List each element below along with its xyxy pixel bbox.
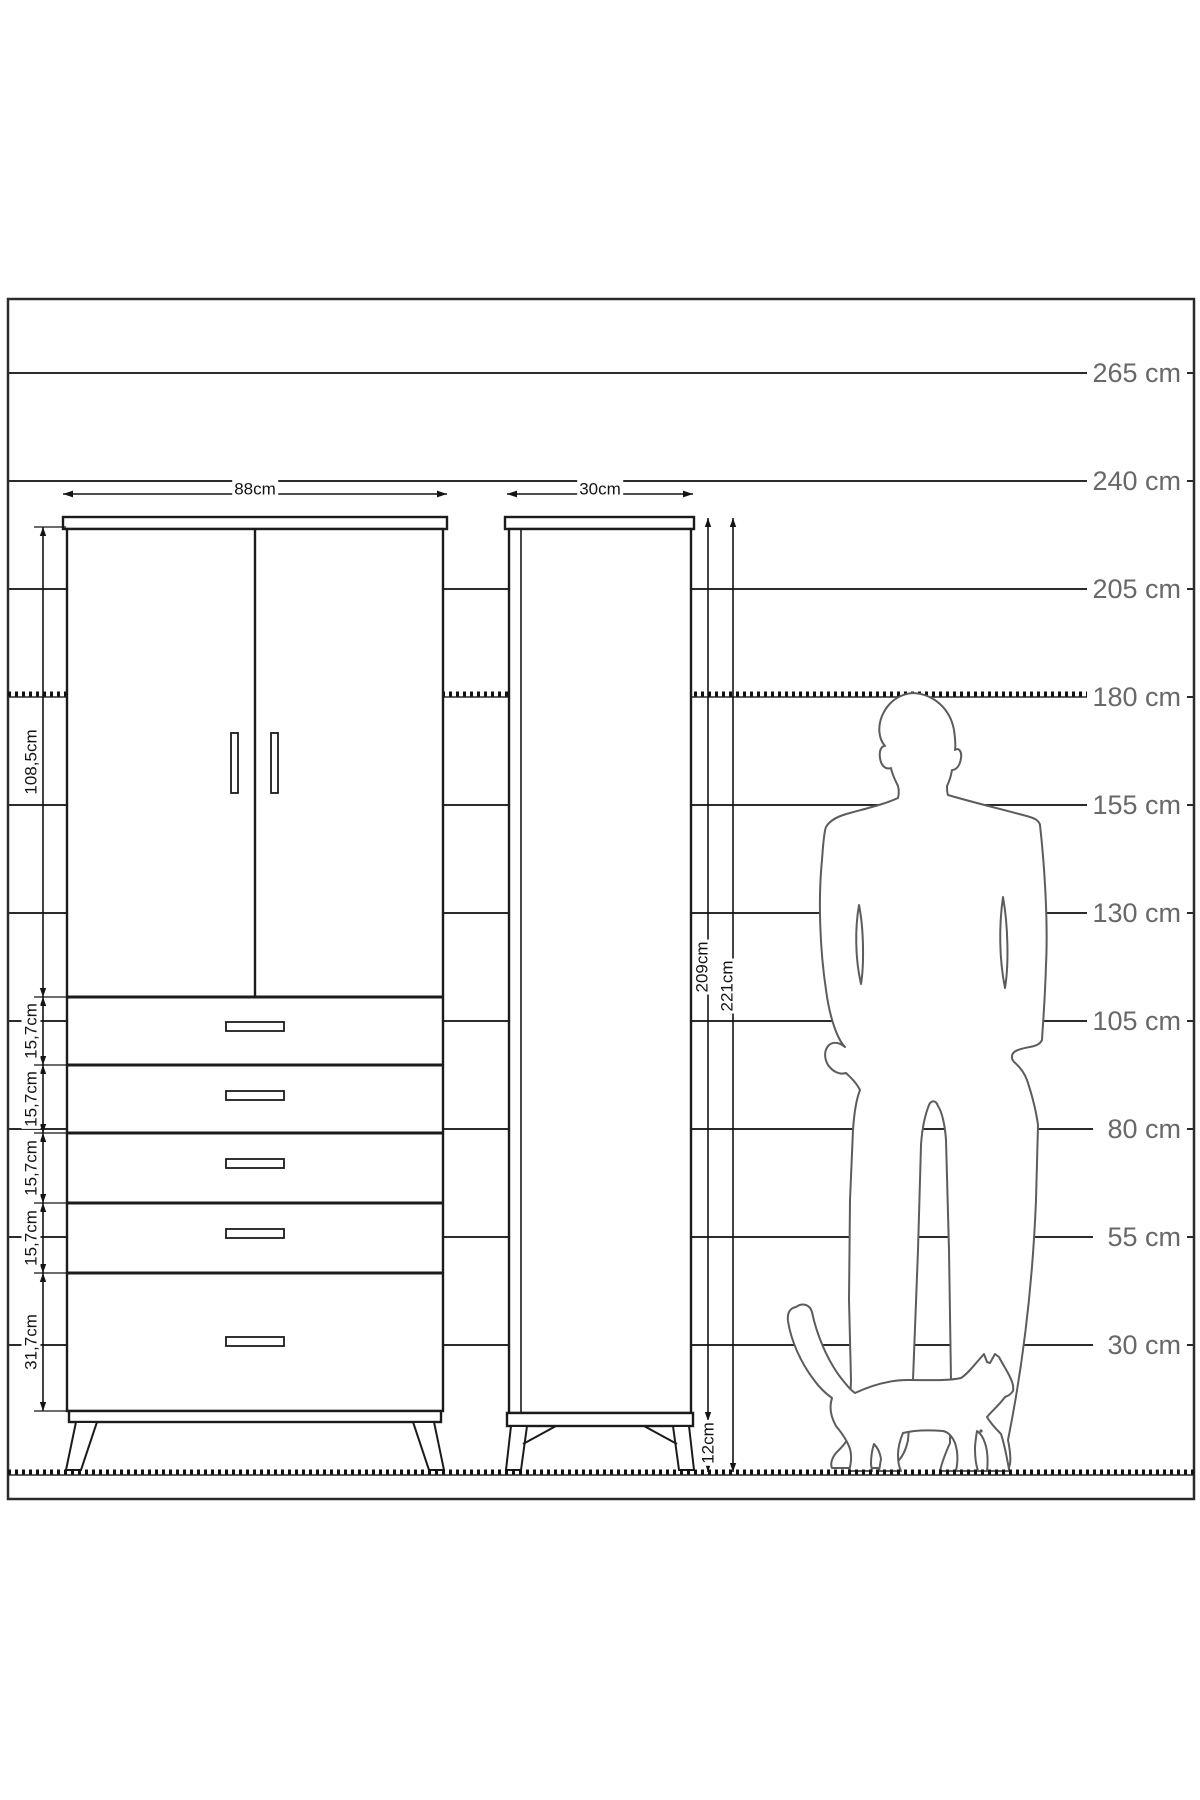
side-body bbox=[509, 529, 691, 1413]
scale-label-180: 180 cm bbox=[1087, 680, 1186, 714]
drawer-height-label-1: 15,7cm bbox=[22, 1001, 41, 1061]
door-section-height-label: 108,5cm bbox=[22, 727, 41, 796]
door-handle-left bbox=[231, 733, 238, 793]
scale-label-155: 155 cm bbox=[1087, 788, 1186, 822]
diagram-canvas bbox=[0, 0, 1200, 1800]
drawer-handle-5 bbox=[226, 1337, 284, 1346]
scale-label-240: 240 cm bbox=[1087, 464, 1186, 498]
scale-label-80: 80 cm bbox=[1102, 1112, 1186, 1146]
scale-label-30: 30 cm bbox=[1102, 1328, 1186, 1362]
side-depth-label: 30cm bbox=[577, 480, 623, 499]
side-total-height-label: 221cm bbox=[718, 958, 737, 1013]
dim-left-chain bbox=[34, 527, 66, 1411]
door-handle-right bbox=[271, 733, 278, 793]
front-leg-left bbox=[66, 1422, 97, 1470]
front-base bbox=[69, 1411, 441, 1422]
side-leg-right bbox=[673, 1426, 694, 1470]
front-leg-right bbox=[413, 1422, 444, 1470]
drawer-handle-1 bbox=[226, 1022, 284, 1031]
side-leg-right-brace bbox=[644, 1426, 677, 1444]
drawer-handle-3 bbox=[226, 1159, 284, 1168]
dimension-diagram: 265 cm 240 cm 205 cm 180 cm 155 cm 130 c… bbox=[0, 0, 1200, 1800]
side-base bbox=[507, 1413, 693, 1426]
scale-label-105: 105 cm bbox=[1087, 1004, 1186, 1038]
drawer-height-label-2: 15,7cm bbox=[22, 1069, 41, 1129]
man-silhouette bbox=[820, 693, 1047, 1471]
wardrobe-side-view bbox=[505, 517, 694, 1470]
scale-label-205: 205 cm bbox=[1087, 572, 1186, 606]
wardrobe-front-view bbox=[63, 517, 447, 1470]
side-leg-left-brace bbox=[523, 1426, 556, 1444]
scale-label-130: 130 cm bbox=[1087, 896, 1186, 930]
front-top-board bbox=[63, 517, 447, 529]
drawer-handle-2 bbox=[226, 1091, 284, 1100]
drawer-height-label-4: 15,7cm bbox=[22, 1208, 41, 1268]
side-body-height-label: 209cm bbox=[693, 939, 712, 994]
man-outline bbox=[820, 693, 1047, 1471]
scale-label-265: 265 cm bbox=[1087, 356, 1186, 390]
front-width-label: 88cm bbox=[232, 480, 278, 499]
ground-line bbox=[8, 1472, 1194, 1475]
drawer-height-label-3: 15,7cm bbox=[22, 1138, 41, 1198]
cat-hip-dot bbox=[979, 1429, 982, 1432]
side-leg-height-label: 12cm bbox=[699, 1420, 718, 1466]
side-leg-left bbox=[506, 1426, 527, 1470]
side-top-board bbox=[505, 517, 694, 529]
scale-label-55: 55 cm bbox=[1102, 1220, 1186, 1254]
drawer-height-label-5: 31,7cm bbox=[22, 1312, 41, 1372]
drawer-handle-4 bbox=[226, 1229, 284, 1238]
